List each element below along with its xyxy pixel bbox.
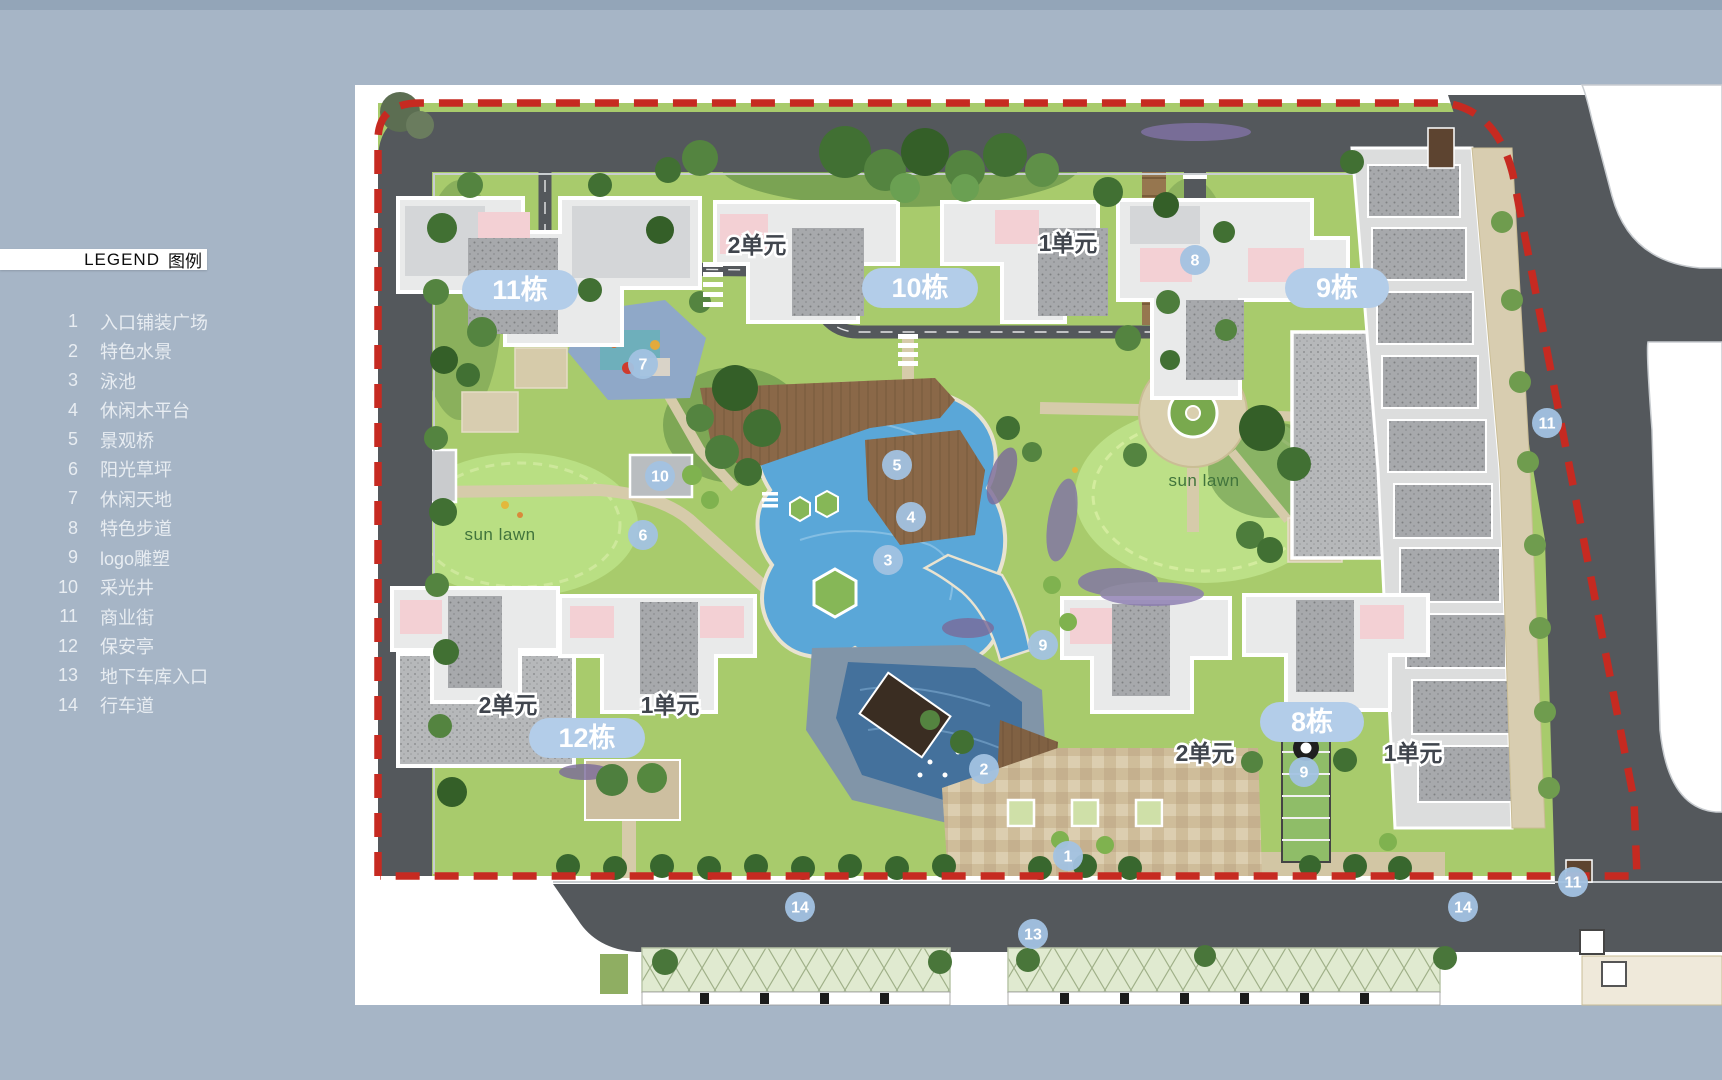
legend-item-label: 行车道 [100, 692, 154, 718]
legend-item-number: 9 [52, 547, 78, 568]
marker-14: 14 [785, 892, 815, 922]
svg-text:3: 3 [884, 553, 893, 570]
legend-item: 2 特色水景 [0, 337, 320, 367]
building-label-pill: 12栋 [529, 718, 645, 758]
legend-item: 3 泳池 [0, 366, 320, 396]
legend-item: 8 特色步道 [0, 514, 320, 544]
building-label-pill: 8栋 [1260, 702, 1364, 742]
legend-item: 14 行车道 [0, 691, 320, 721]
legend-item-label: 保安亭 [100, 633, 154, 659]
marker-7: 7 [628, 349, 658, 379]
marker-11: 11 [1532, 408, 1562, 438]
svg-text:7: 7 [639, 357, 648, 374]
marker-9: 9 [1028, 630, 1058, 660]
marker-9b: 9 [1289, 757, 1319, 787]
svg-text:1单元: 1单元 [641, 692, 700, 718]
legend-item-label: 休闲木平台 [100, 397, 190, 423]
legend-title-en: LEGEND [84, 250, 160, 270]
unit-label: 1单元 [641, 692, 700, 718]
svg-text:10: 10 [651, 469, 669, 486]
marker-4: 4 [896, 502, 926, 532]
legend-item-label: logo雕塑 [100, 545, 170, 571]
marker-10: 10 [645, 461, 675, 491]
legend-item: 11 商业街 [0, 602, 320, 632]
legend-item: 9 logo雕塑 [0, 543, 320, 573]
legend-item: 12 保安亭 [0, 632, 320, 662]
marker-2: 2 [969, 754, 999, 784]
svg-text:9: 9 [1300, 765, 1309, 782]
legend-item-label: 地下车库入口 [100, 663, 208, 689]
svg-text:2单元: 2单元 [1176, 740, 1235, 766]
marker-13: 13 [1018, 919, 1048, 949]
unit-label: 2单元 [728, 232, 787, 258]
legend-item-number: 6 [52, 459, 78, 480]
building-label-pill: 9栋 [1285, 268, 1389, 308]
legend-item: 13 地下车库入口 [0, 661, 320, 691]
legend-item-label: 采光井 [100, 574, 154, 600]
svg-text:9: 9 [1039, 638, 1048, 655]
svg-text:1: 1 [1064, 849, 1073, 866]
unit-label: 1单元 [1384, 740, 1443, 766]
legend-item-number: 14 [52, 695, 78, 716]
svg-text:1单元: 1单元 [1384, 740, 1443, 766]
legend-item-number: 10 [52, 577, 78, 598]
legend-item-label: 特色步道 [100, 515, 172, 541]
legend-item-number: 8 [52, 518, 78, 539]
svg-text:5: 5 [893, 458, 902, 475]
svg-text:11栋: 11栋 [492, 274, 548, 305]
marker-5: 5 [882, 450, 912, 480]
sun-lawn-label: sun lawn [1168, 471, 1239, 490]
svg-text:8: 8 [1191, 253, 1200, 270]
legend-item-number: 2 [52, 341, 78, 362]
legend-item-number: 7 [52, 488, 78, 509]
svg-text:2单元: 2单元 [728, 232, 787, 258]
legend-item-label: 阳光草坪 [100, 456, 172, 482]
building-label-pill: 10栋 [862, 268, 978, 308]
legend-title-bar: LEGEND 图例 [0, 249, 207, 270]
legend-item: 10 采光井 [0, 573, 320, 603]
legend-item-label: 休闲天地 [100, 486, 172, 512]
building-label-pill: 11栋 [462, 270, 578, 310]
unit-label: 2单元 [479, 692, 538, 718]
marker-1: 1 [1053, 841, 1083, 871]
legend-item: 4 休闲木平台 [0, 396, 320, 426]
legend-item-label: 泳池 [100, 368, 136, 394]
svg-text:6: 6 [639, 528, 648, 545]
sun-lawn-label: sun lawn [464, 525, 535, 544]
svg-text:2单元: 2单元 [479, 692, 538, 718]
svg-text:11: 11 [1539, 416, 1556, 433]
svg-text:sun lawn: sun lawn [464, 525, 535, 544]
svg-text:sun lawn: sun lawn [1168, 471, 1239, 490]
logo-garden [1282, 730, 1330, 862]
marker-11b: 11 [1558, 867, 1588, 897]
legend-item-number: 1 [52, 311, 78, 332]
legend-item: 6 阳光草坪 [0, 455, 320, 485]
legend-list: 1 入口铺装广场 2 特色水景 3 泳池 4 休闲木平台 5 景观桥 6 阳光草… [0, 307, 320, 720]
legend-item-label: 入口铺装广场 [100, 309, 208, 335]
svg-text:14: 14 [1454, 900, 1472, 917]
svg-text:11: 11 [1565, 875, 1582, 892]
svg-text:12栋: 12栋 [558, 722, 615, 753]
legend-item: 7 休闲天地 [0, 484, 320, 514]
unit-label: 1单元 [1039, 230, 1098, 256]
legend-item-number: 4 [52, 400, 78, 421]
legend-item-label: 特色水景 [100, 338, 172, 364]
legend-item-label: 景观桥 [100, 427, 154, 453]
svg-text:1单元: 1单元 [1039, 230, 1098, 256]
legend-item-number: 13 [52, 665, 78, 686]
legend-item-label: 商业街 [100, 604, 154, 630]
marker-6: 6 [628, 520, 658, 550]
svg-text:8栋: 8栋 [1291, 706, 1333, 737]
svg-text:4: 4 [907, 510, 916, 527]
marker-3: 3 [873, 545, 903, 575]
svg-text:13: 13 [1024, 927, 1042, 944]
marker-14b: 14 [1448, 892, 1478, 922]
legend-item-number: 12 [52, 636, 78, 657]
legend-item: 5 景观桥 [0, 425, 320, 455]
legend-item-number: 3 [52, 370, 78, 391]
legend-item: 1 入口铺装广场 [0, 307, 320, 337]
legend-item-number: 11 [52, 606, 78, 627]
unit-label: 2单元 [1176, 740, 1235, 766]
svg-text:2: 2 [980, 762, 989, 779]
svg-text:14: 14 [791, 900, 809, 917]
legend-title-zh: 图例 [168, 247, 202, 272]
legend-item-number: 5 [52, 429, 78, 450]
svg-text:9栋: 9栋 [1316, 272, 1358, 303]
svg-text:10栋: 10栋 [891, 272, 948, 303]
marker-8: 8 [1180, 245, 1210, 275]
